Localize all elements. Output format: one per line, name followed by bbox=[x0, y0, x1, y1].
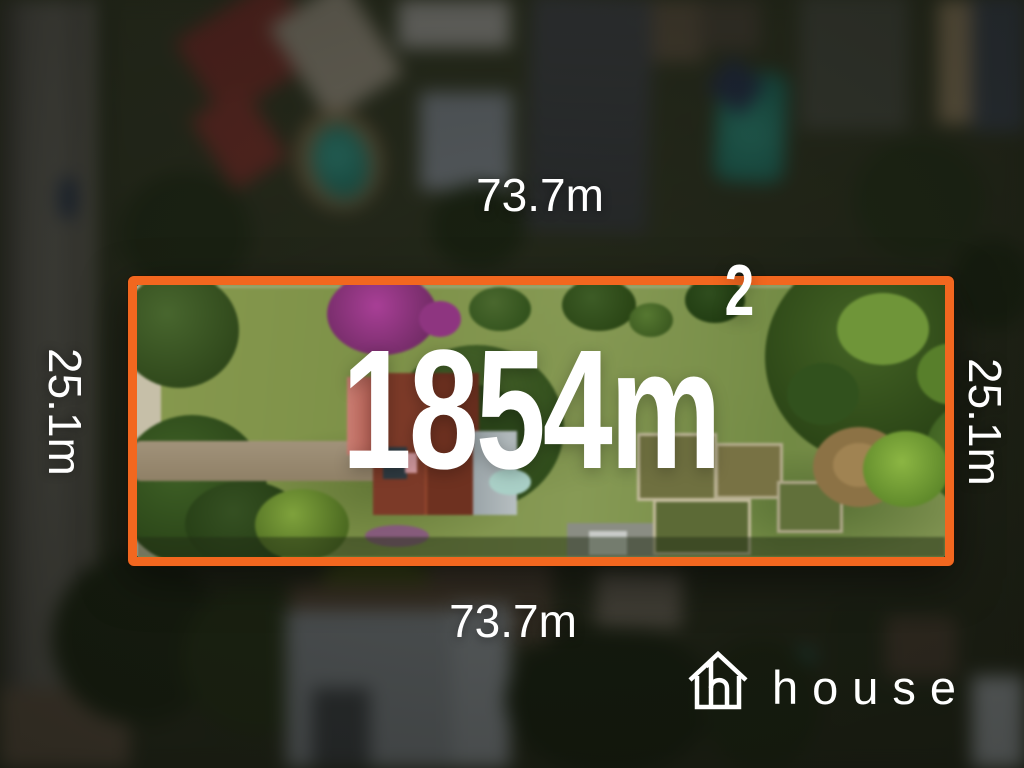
tree-highlight bbox=[837, 293, 929, 365]
hedge-row-bottom bbox=[137, 537, 945, 557]
land-area-superscript: 2 bbox=[725, 251, 755, 331]
bottom-width-label: 73.7m bbox=[449, 598, 577, 644]
land-area-label: 1854m2 bbox=[269, 325, 826, 495]
land-area-value: 1854m bbox=[342, 315, 719, 505]
brand-name: house bbox=[772, 664, 970, 711]
left-depth-label: 25.1m bbox=[42, 332, 88, 492]
right-depth-label: 25.1m bbox=[962, 342, 1008, 502]
pandanus-plant bbox=[863, 431, 945, 507]
property-marketing-image: 73.7m 73.7m 25.1m 25.1m 1854m2 house bbox=[0, 0, 1024, 768]
house-outline-icon bbox=[682, 648, 754, 712]
brand-logo: house bbox=[682, 648, 970, 712]
top-width-label: 73.7m bbox=[476, 172, 604, 218]
